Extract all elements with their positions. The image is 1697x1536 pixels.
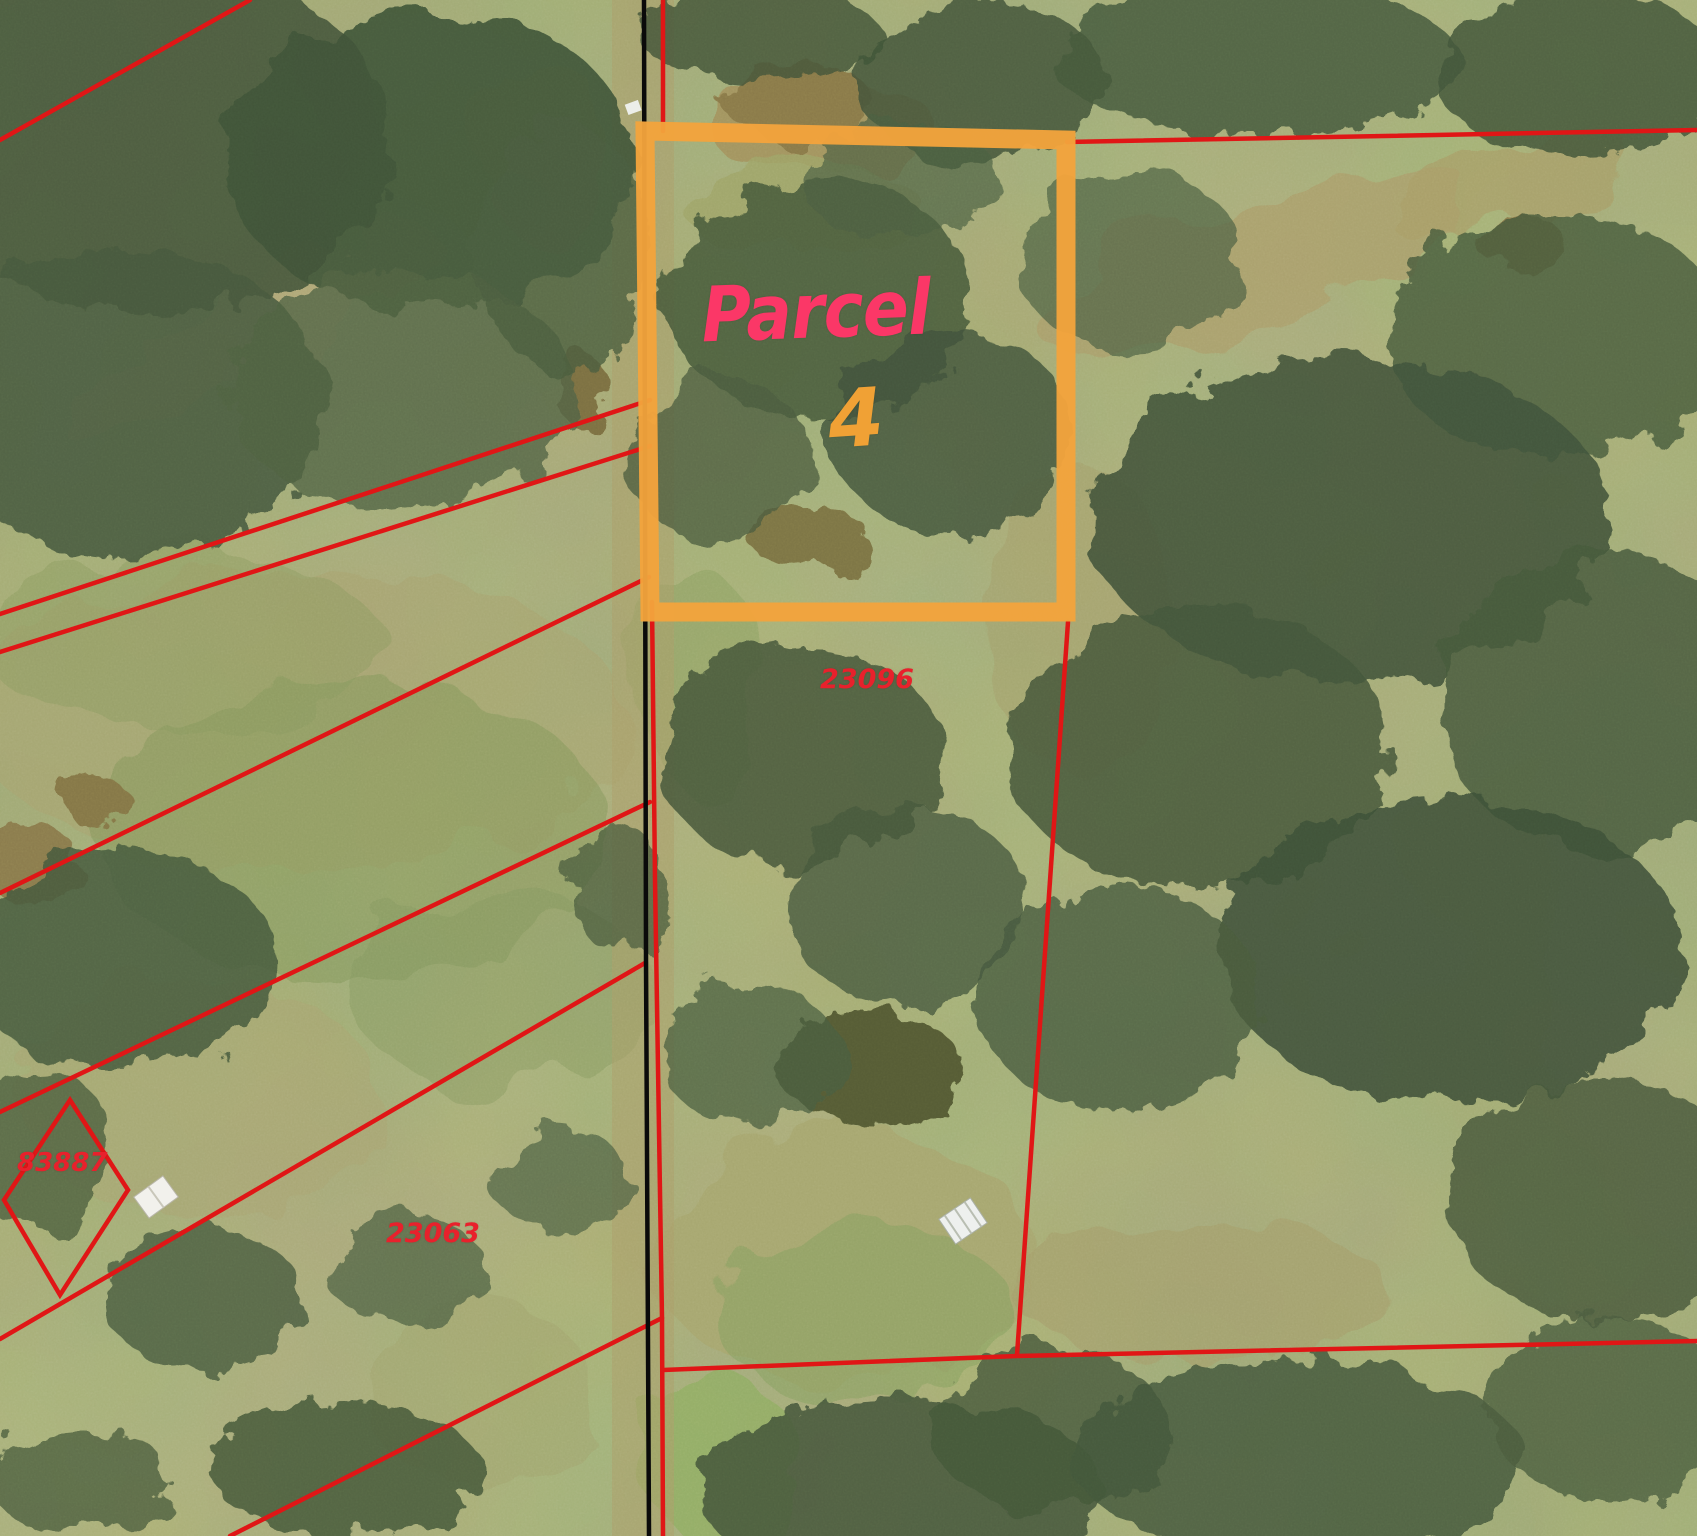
parcel-map: Parcel 4 23096 83887 23063 xyxy=(0,0,1697,1536)
aerial-basemap xyxy=(0,0,1697,1536)
